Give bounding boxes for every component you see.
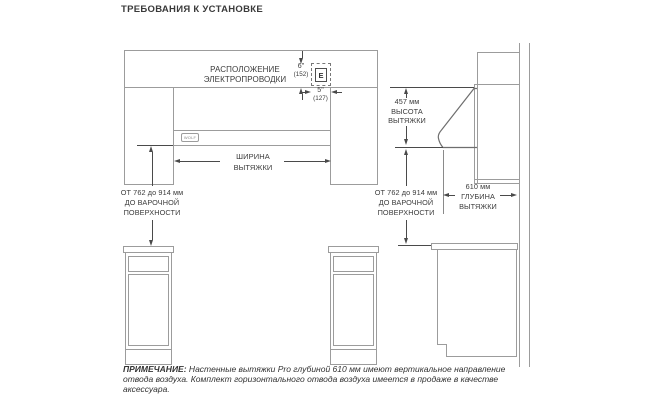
depth-arrow-right: [511, 193, 517, 197]
hood-bottom-ref-right: [395, 147, 443, 148]
brand-badge: WOLF: [181, 133, 199, 142]
depth-extension-line: [443, 150, 444, 214]
dim-5in-tail-right: [337, 92, 342, 93]
height-arrow-down: [404, 139, 408, 145]
electrical-box: E: [315, 68, 327, 82]
hood-width-label: ШИРИНА ВЫТЯЖКИ: [213, 151, 293, 173]
wall-line-back: [529, 43, 530, 367]
cooktop-left-line-bottom: [152, 220, 153, 240]
base-cabinet-right-drawer: [333, 256, 374, 272]
upper-cabinet-right: [330, 87, 378, 185]
installation-requirements-page: ТРЕБОВАНИЯ К УСТАНОВКЕ WOLF РАСПОЛОЖЕНИЕ…: [0, 0, 650, 400]
hood-height-label: 457 мм ВЫСОТА ВЫТЯЖКИ: [378, 97, 436, 126]
range-back-edge: [516, 249, 517, 356]
cooktop-left-label: ОТ 762 до 914 мм ДО ВАРОЧНОЙ ПОВЕРХНОСТИ: [98, 188, 206, 218]
cooktop-right-line-top: [406, 155, 407, 186]
base-cabinet-right-door: [333, 274, 374, 346]
dim-6in-line-bottom: [302, 94, 303, 100]
cooktop-right-line-bottom: [406, 220, 407, 238]
dim-5in-mm: (127): [310, 95, 331, 103]
upper-cabinet-side: [474, 84, 520, 184]
depth-line-right: [500, 195, 511, 196]
hood-depth-label: 610 мм ГЛУБИНА ВЫТЯЖКИ: [449, 182, 507, 212]
note: ПРИМЕЧАНИЕ: Настенные вытяжки Pro глубин…: [123, 365, 523, 394]
wiring-location-label: РАСПОЛОЖЕНИЕ ЭЛЕКТРОПРОВОДКИ: [185, 65, 305, 85]
cooktop-left-line-top: [152, 152, 153, 186]
hood-bottom-ref-left: [137, 145, 173, 146]
hood-width-line-right: [284, 161, 325, 162]
note-line-3: аксессуара.: [123, 385, 523, 395]
range-front-edge: [437, 249, 438, 345]
hood-width-arrow-right: [325, 159, 331, 163]
cooktop-right-arrow-down: [404, 238, 408, 244]
soffit-side: [477, 52, 520, 85]
base-cabinet-left-door: [128, 274, 169, 346]
base-cabinet-left-drawer: [128, 256, 169, 272]
upper-cabinet-left: [124, 87, 174, 185]
height-line-bottom: [406, 126, 407, 139]
base-cabinet-right-toekick-line: [331, 349, 376, 350]
dim-6in-line-top: [302, 51, 303, 58]
countertop-ref-line: [398, 245, 431, 246]
note-prefix: ПРИМЕЧАНИЕ:: [123, 364, 187, 374]
hood-top-ref-line: [390, 87, 474, 88]
range-bottom-edge: [446, 356, 517, 357]
upper-cabinet-side-shelf-line: [475, 179, 519, 180]
range-countertop-side: [431, 243, 518, 250]
note-line-2: отвода воздуха. Комплект горизонтального…: [123, 375, 523, 385]
page-title: ТРЕБОВАНИЯ К УСТАНОВКЕ: [121, 4, 263, 16]
hood-side-profile: [430, 80, 480, 150]
base-cabinet-left-toekick-line: [126, 349, 171, 350]
